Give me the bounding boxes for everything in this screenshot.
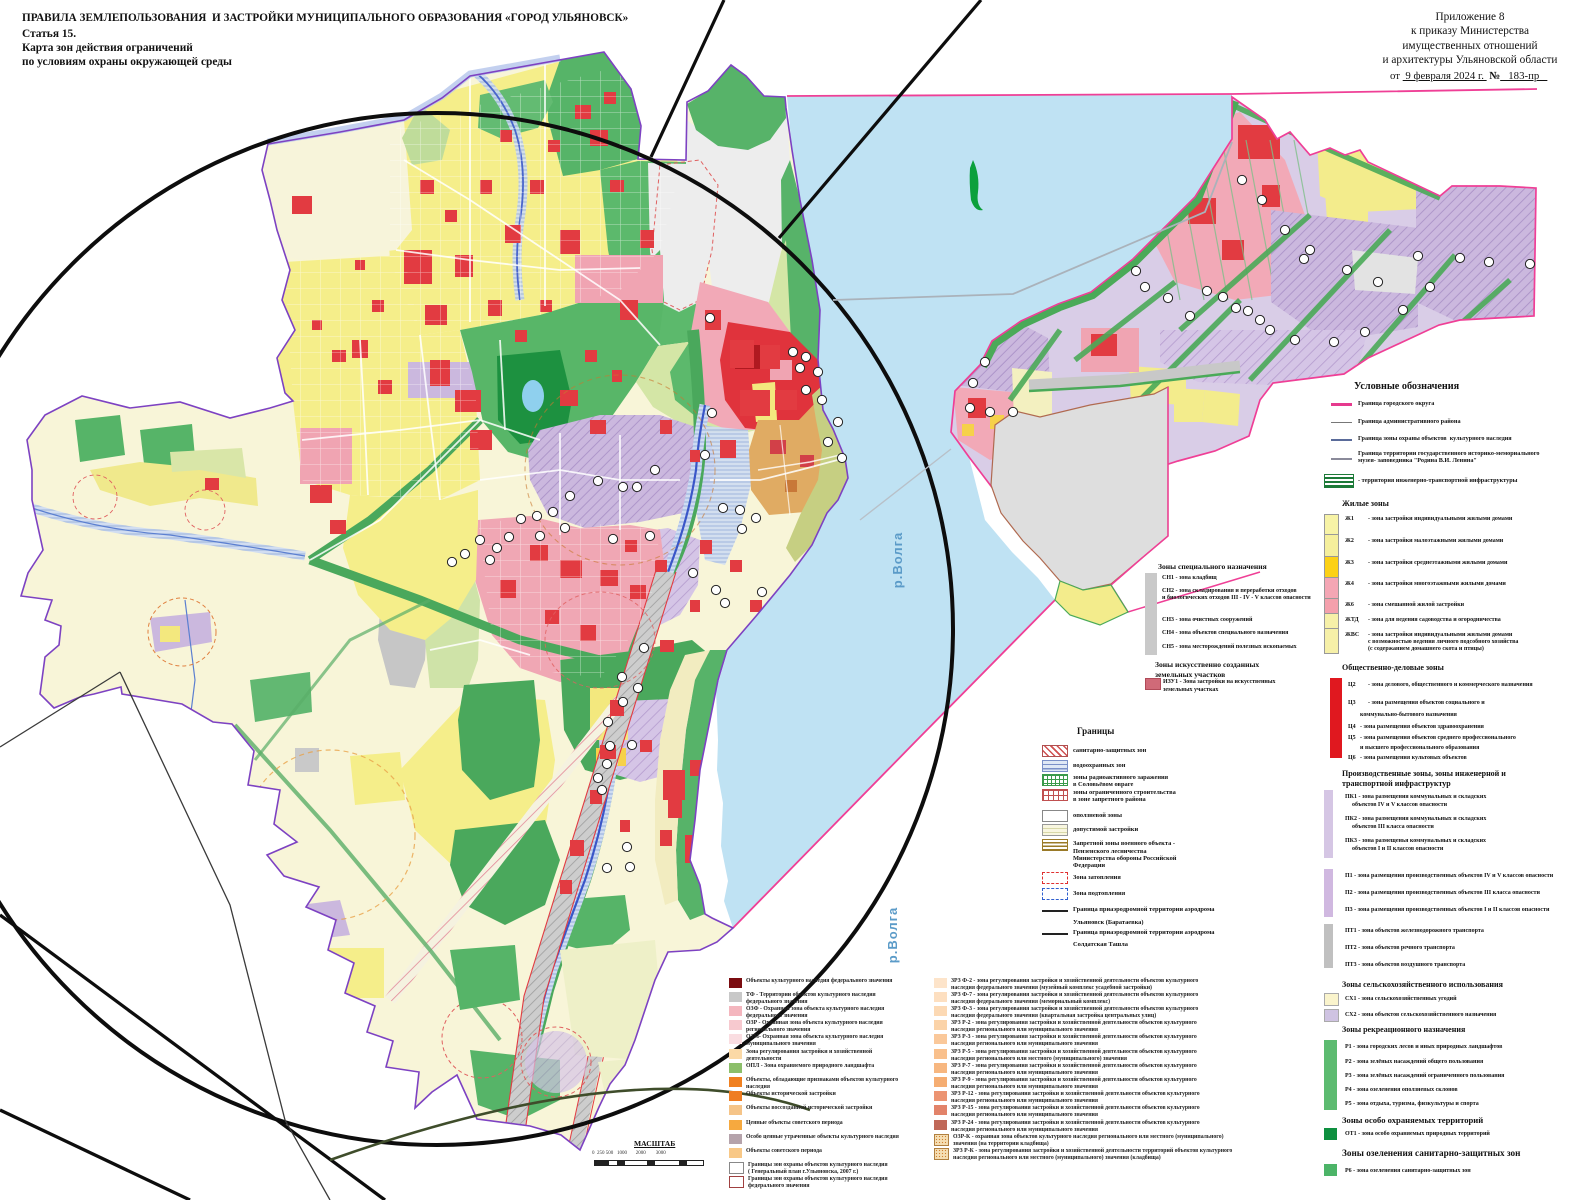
svg-text:р.Волга: р.Волга <box>885 907 900 963</box>
svg-text:р.Волга: р.Волга <box>890 532 905 588</box>
